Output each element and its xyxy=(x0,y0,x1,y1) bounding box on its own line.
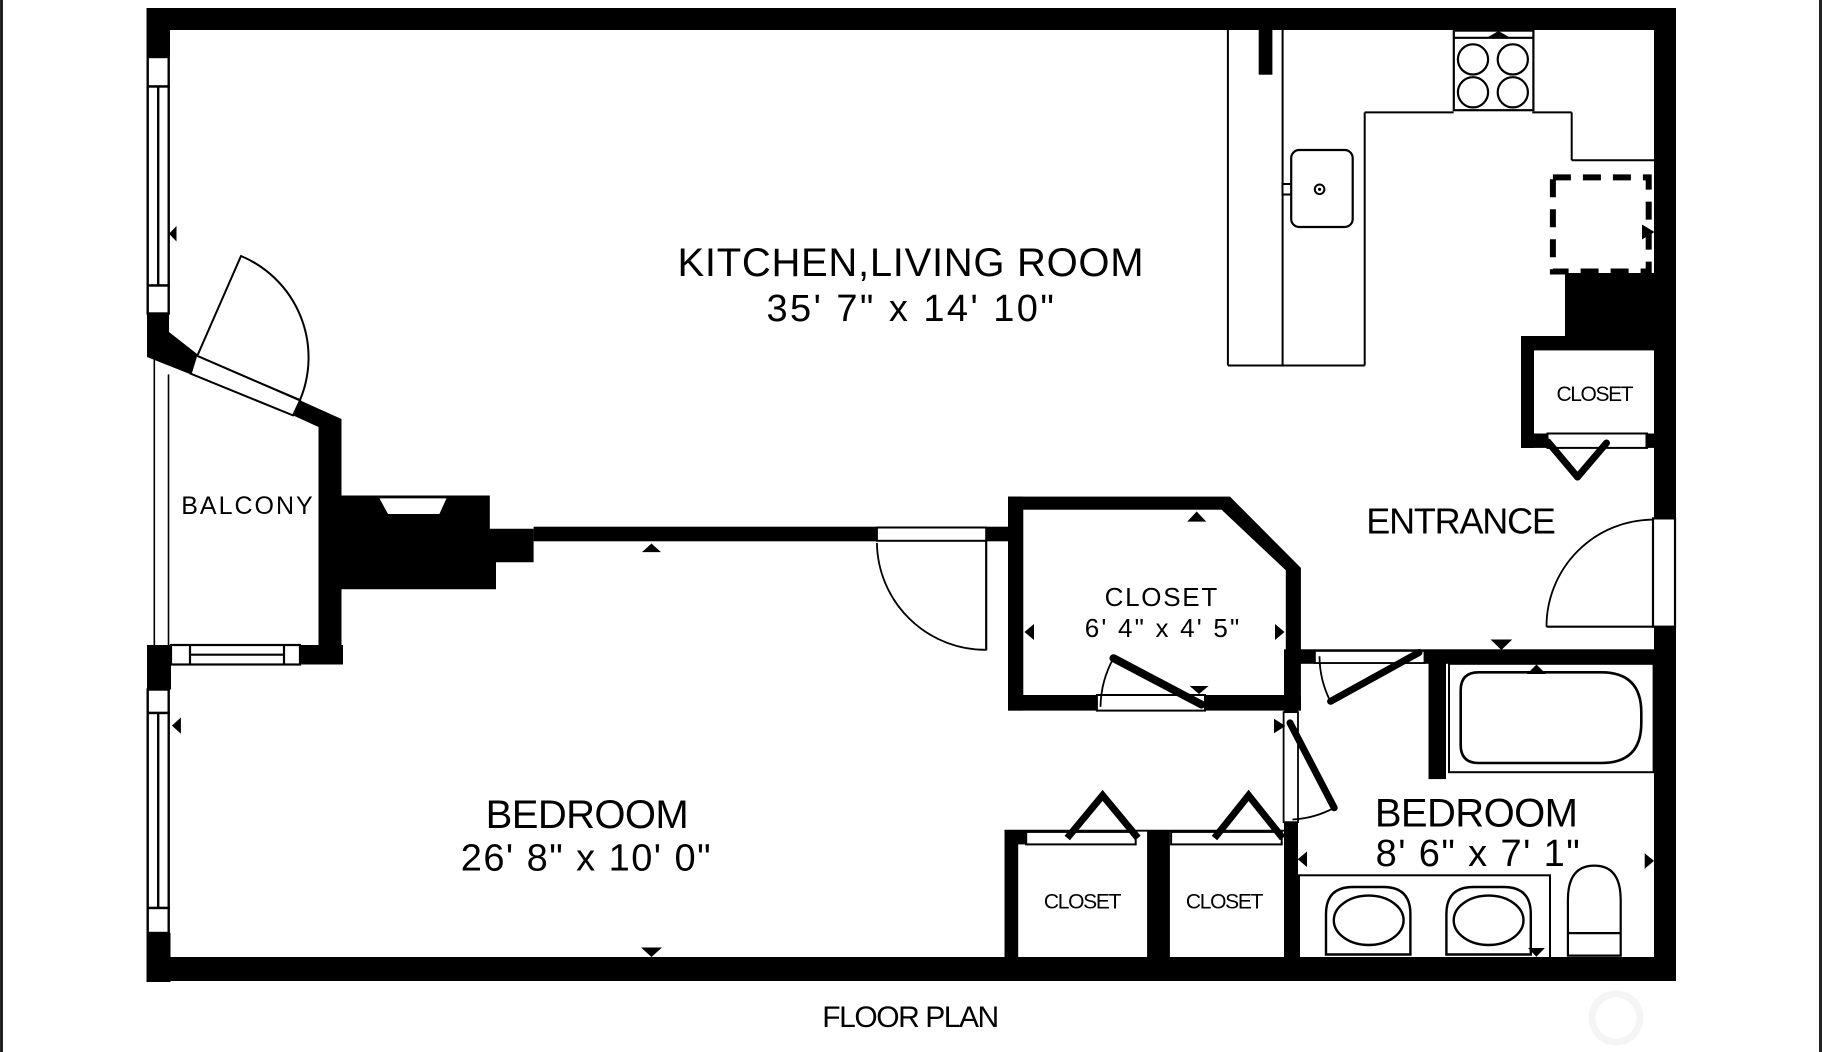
svg-text:KITCHEN,LIVING ROOM: KITCHEN,LIVING ROOM xyxy=(678,241,1145,285)
svg-text:ENTRANCE: ENTRANCE xyxy=(1366,501,1555,542)
svg-text:BALCONY: BALCONY xyxy=(181,492,314,520)
svg-text:8' 6" x 7' 1": 8' 6" x 7' 1" xyxy=(1376,833,1581,875)
svg-text:CLOSET: CLOSET xyxy=(1105,582,1219,612)
svg-text:FLOOR PLAN: FLOOR PLAN xyxy=(822,1001,998,1034)
svg-text:6' 4" x 4' 5": 6' 4" x 4' 5" xyxy=(1085,613,1242,643)
svg-text:35' 7" x 14' 10": 35' 7" x 14' 10" xyxy=(766,288,1056,330)
svg-text:CLOSET: CLOSET xyxy=(1186,891,1264,914)
svg-text:BEDROOM: BEDROOM xyxy=(1375,792,1577,836)
svg-text:26' 8" x 10' 0": 26' 8" x 10' 0" xyxy=(461,838,712,880)
svg-text:CLOSET: CLOSET xyxy=(1556,383,1633,406)
svg-text:CLOSET: CLOSET xyxy=(1044,891,1122,914)
svg-text:BEDROOM: BEDROOM xyxy=(486,793,688,837)
